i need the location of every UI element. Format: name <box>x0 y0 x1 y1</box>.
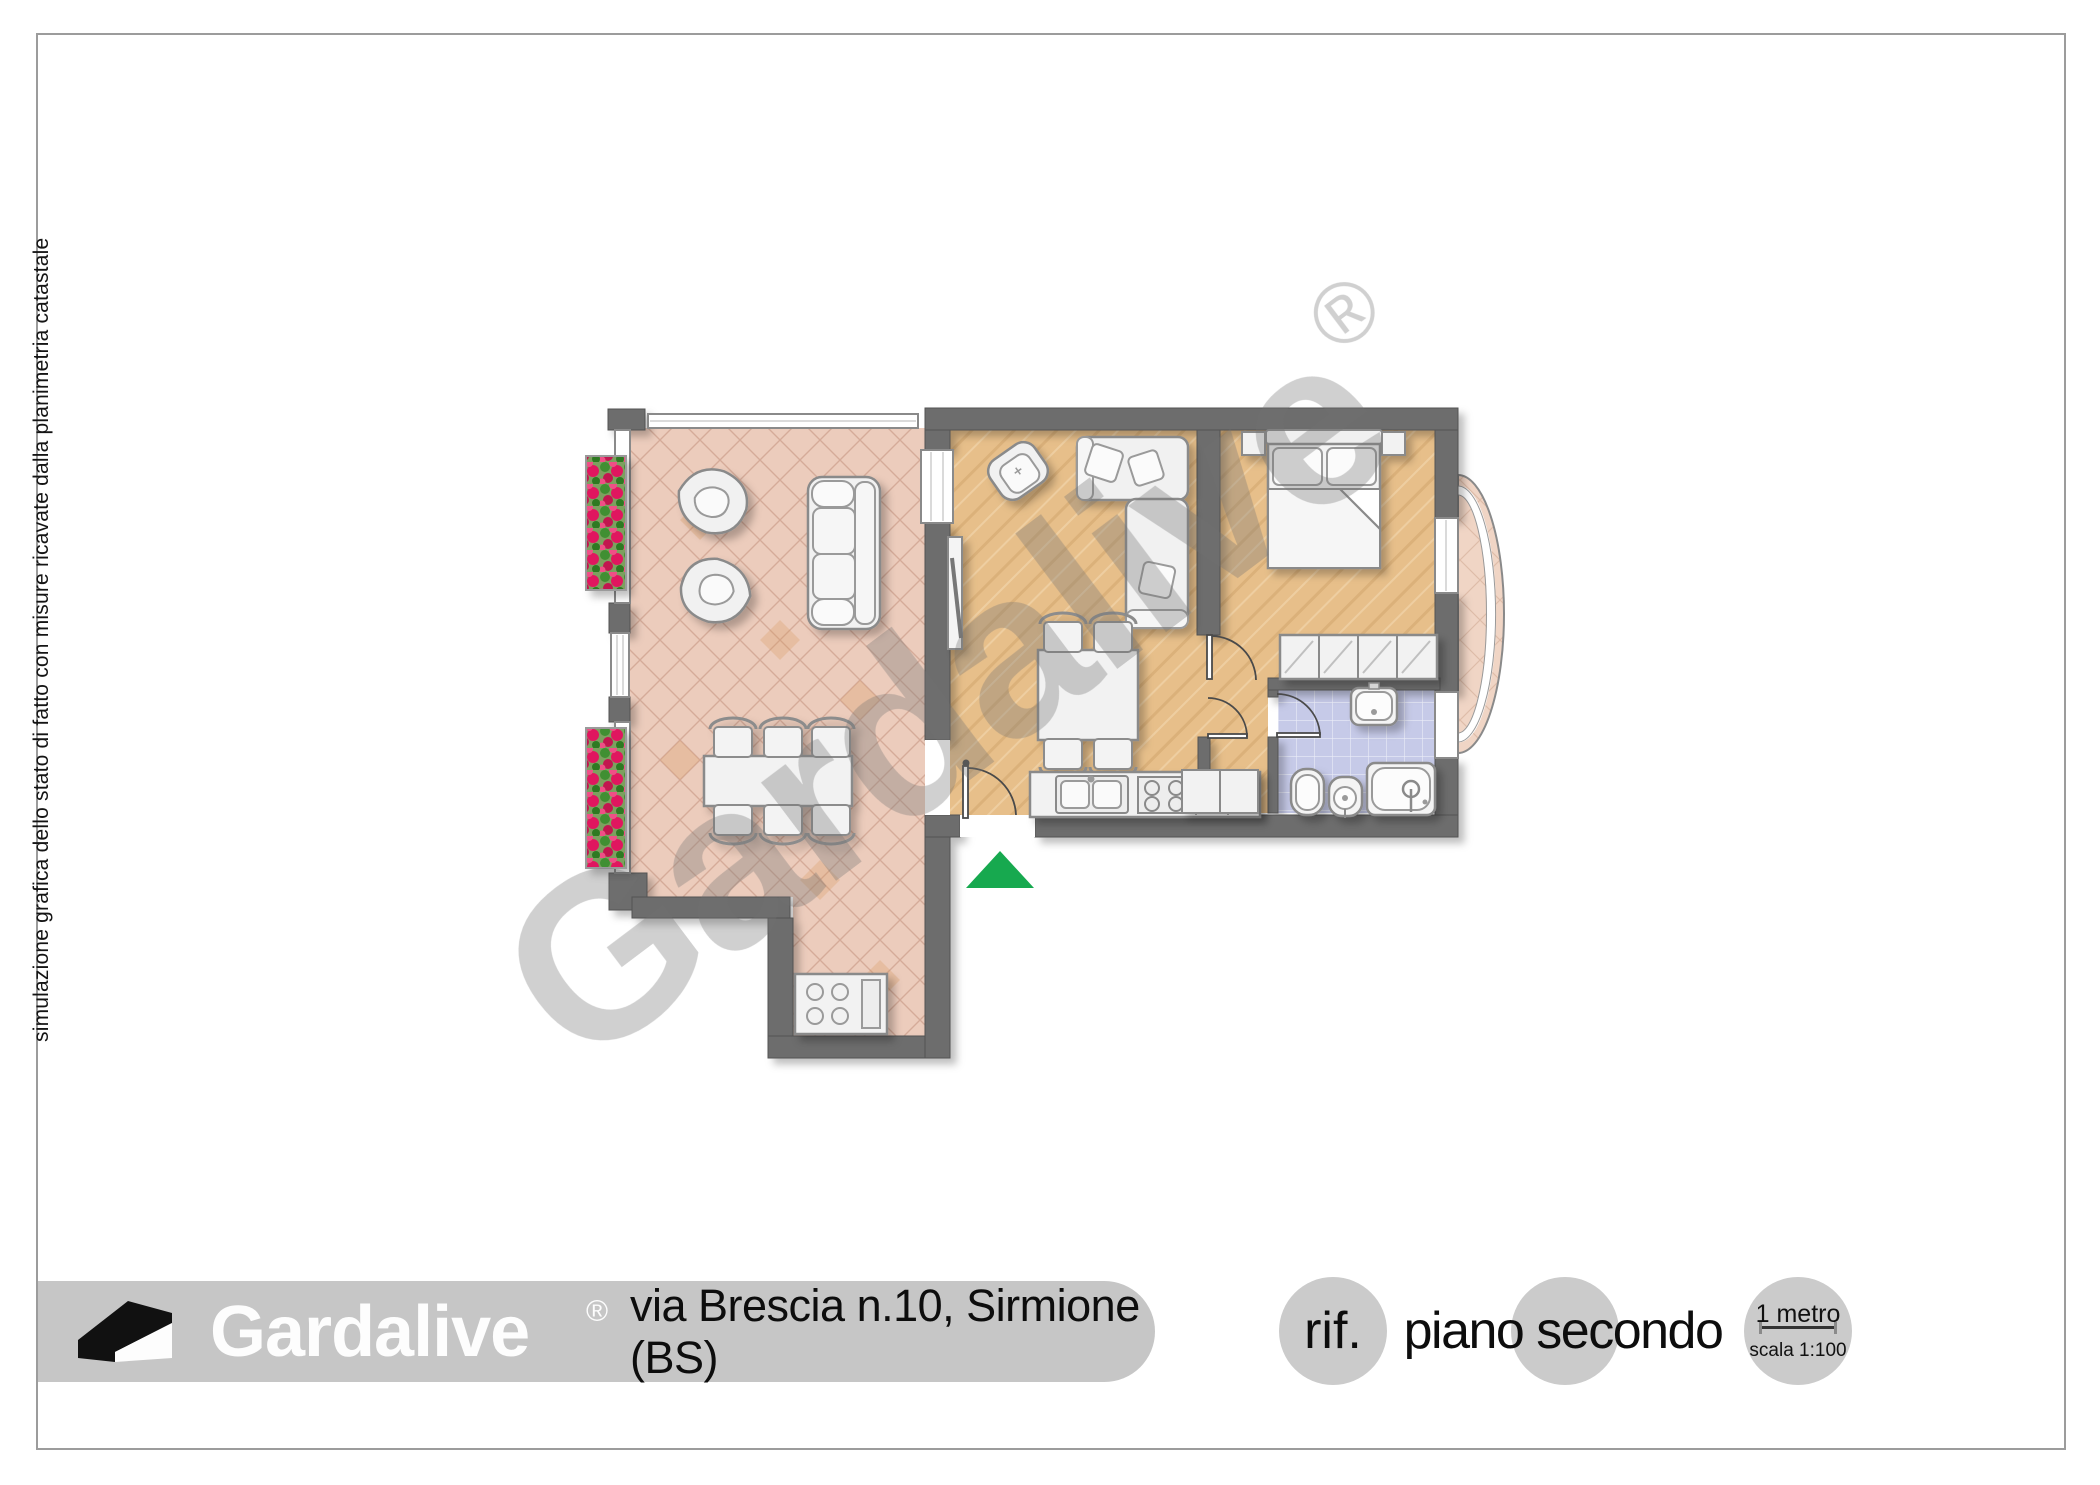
living-terrace-window <box>921 450 953 523</box>
flower-box <box>586 456 626 590</box>
brand-bar: Gardalive ® via Brescia n.10, Sirmione (… <box>38 1281 1155 1382</box>
terrace-sofa <box>808 477 880 629</box>
terrace-left-window <box>611 633 629 697</box>
terrace-door-opening <box>925 740 950 815</box>
floor-label: piano secondo <box>1398 1300 1728 1362</box>
terrace-stove <box>795 974 887 1034</box>
wardrobe <box>1280 635 1437 679</box>
scale-bar <box>1760 1326 1836 1341</box>
tv-cabinet <box>948 537 962 649</box>
reference-badge: rif. <box>1279 1277 1387 1385</box>
kitchen-sink <box>1056 776 1128 814</box>
brand-registered-icon: ® <box>586 1295 608 1329</box>
gardalive-logo-icon <box>78 1300 174 1364</box>
toilet <box>1329 777 1362 818</box>
bathtub <box>1367 763 1435 815</box>
reference-label: rif. <box>1304 1301 1362 1361</box>
nightstand <box>1382 432 1405 455</box>
entrance-opening <box>960 815 1035 837</box>
scale-ratio-label: scala 1:100 <box>1749 1341 1846 1361</box>
floor-plan <box>0 0 2100 1485</box>
bidet <box>1291 769 1324 815</box>
terrace-dining-table <box>704 756 852 806</box>
bathroom-window <box>1435 692 1458 758</box>
scale-length-label: 1 metro <box>1756 1301 1841 1327</box>
bed <box>1266 430 1382 568</box>
entrance-arrow-icon <box>966 851 1034 888</box>
bathroom-sink <box>1351 683 1397 725</box>
property-address: via Brescia n.10, Sirmione (BS) <box>630 1281 1155 1382</box>
page: simulazione grafica dello stato di fatto… <box>0 0 2100 1485</box>
flower-box <box>586 728 626 868</box>
nightstand <box>1242 432 1265 455</box>
hall-cabinets <box>1182 770 1258 813</box>
brand-name: Gardalive <box>210 1281 529 1382</box>
scale-badge: 1 metro scala 1:100 <box>1744 1277 1852 1385</box>
